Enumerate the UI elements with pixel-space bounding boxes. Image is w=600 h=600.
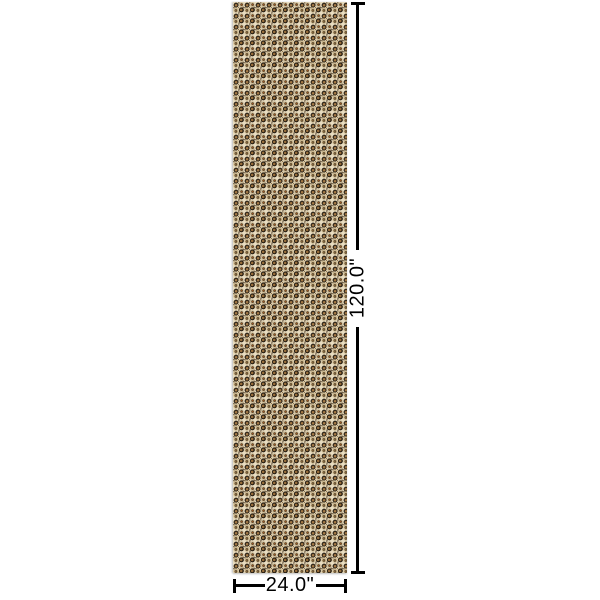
width-dimension-label: 24.0" bbox=[266, 574, 315, 597]
width-dimension-cap-right bbox=[344, 579, 347, 593]
leopard-pattern-svg bbox=[233, 2, 347, 573]
height-dimension-line-lower bbox=[356, 327, 359, 574]
product-preview bbox=[233, 2, 347, 573]
height-dimension-label: 120.0" bbox=[347, 258, 370, 318]
height-dimension-line-upper bbox=[356, 2, 359, 250]
diagram-canvas: 120.0" 24.0" bbox=[0, 0, 600, 600]
width-dimension-line-right bbox=[316, 584, 347, 587]
height-dimension-cap-bottom bbox=[351, 571, 365, 574]
width-dimension-line-left bbox=[233, 584, 265, 587]
